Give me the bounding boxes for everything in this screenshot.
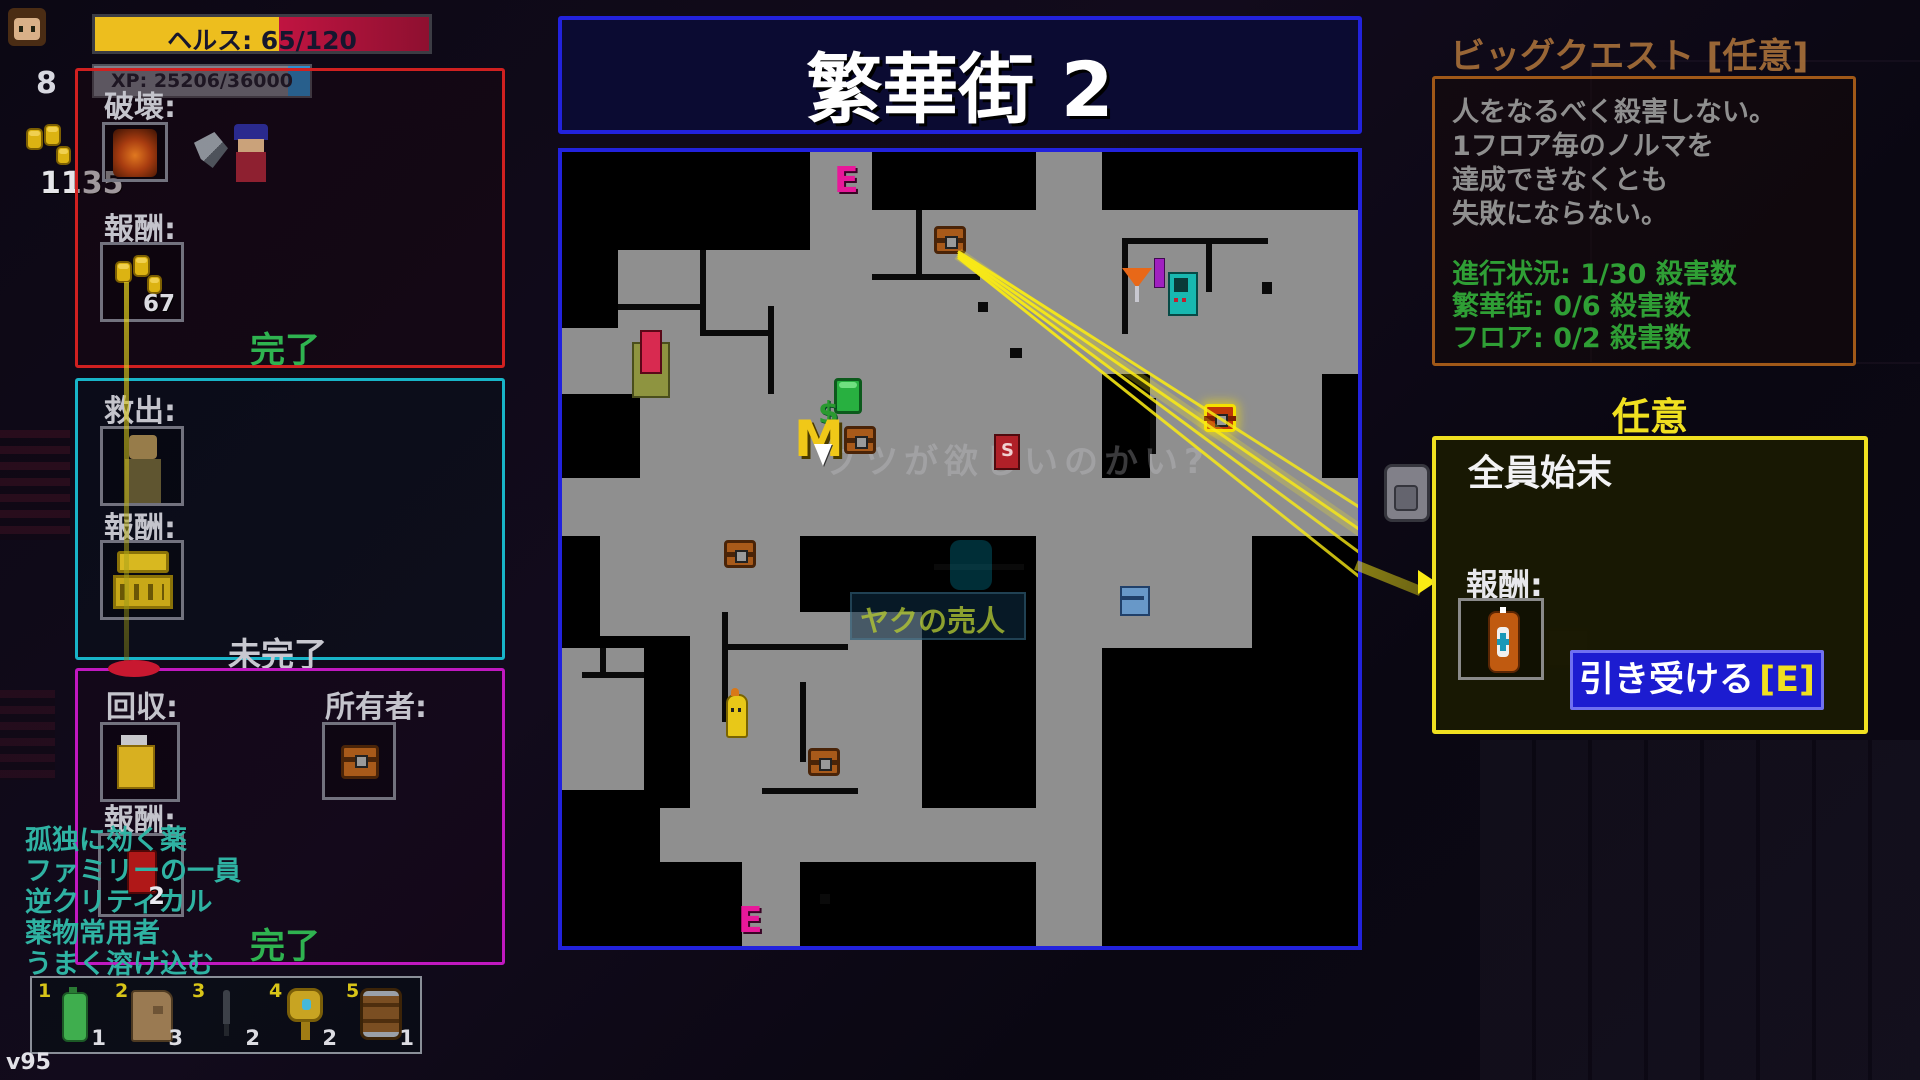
blue-box-lid (1122, 596, 1144, 600)
accept-quest-label: 引き受ける (1579, 660, 1754, 700)
map-panel: ブツが欲しいのかい? ヤクの売人 E E $ M S (558, 148, 1362, 950)
money-coin-icon (44, 124, 61, 146)
map-title-bar: 繁華街 2 (558, 16, 1362, 134)
slot-number: 4 (269, 980, 282, 1002)
slot-count: 2 (245, 1026, 260, 1050)
cocktail-icon (1122, 268, 1152, 288)
device-icon-base (113, 575, 173, 609)
bullet-npc-icon (726, 694, 748, 738)
hotbar-slot-2[interactable]: 2 3 (113, 980, 187, 1050)
quest-connector-line (124, 282, 129, 672)
avatar-eye (19, 26, 23, 32)
map-debris (1010, 348, 1022, 358)
rescue-target-box (100, 426, 184, 506)
map-chest-icon (808, 748, 840, 776)
bottle-cross-h (1497, 639, 1509, 645)
big-quest-desc-line: 失敗にならない。 (1452, 192, 1668, 231)
slot-count: 1 (399, 1026, 414, 1050)
optional-quest-title: 全員始末 (1468, 444, 1612, 496)
level-number: 8 (36, 66, 57, 101)
accept-quest-button[interactable]: 引き受ける [E] (1570, 650, 1824, 710)
slot-machine-top (640, 330, 662, 374)
vending-screen (1174, 278, 1188, 292)
npc-body (236, 152, 266, 182)
map-wall (618, 304, 704, 310)
health-bar-label: ヘルス: 65/120 (95, 21, 429, 57)
slot-number: 5 (346, 980, 359, 1002)
exit-marker-top: E (834, 160, 859, 201)
bag-fold (153, 1006, 163, 1014)
slot-number: 3 (192, 980, 205, 1002)
npc-face (238, 139, 264, 152)
retrieve-owner-label: 所有者: (325, 682, 427, 726)
map-chest-icon (844, 426, 876, 454)
sign-s-icon: S (994, 434, 1020, 470)
game-screen: ヘルス: 65/120 8 XP: 25206/36000 1135 破壊: 報… (0, 0, 1920, 1080)
map-wall (762, 788, 858, 794)
vending-dot (1174, 298, 1178, 302)
map-room (660, 808, 1040, 862)
paper-bag-icon (131, 990, 173, 1042)
mirror-gem (302, 999, 311, 1010)
version-label: v95 (6, 1050, 51, 1075)
map-street-horizontal (562, 478, 1358, 536)
slot-number: 2 (115, 980, 128, 1002)
map-debris (1262, 282, 1272, 294)
objective-arrow-icon (888, 260, 912, 288)
bottle-rim (839, 382, 857, 388)
player-avatar (8, 8, 46, 46)
sign-s-text: S (1001, 440, 1014, 461)
map-wall (582, 672, 644, 678)
map-room (562, 328, 618, 394)
background-bricks (0, 430, 70, 540)
map-cursor-icon (814, 444, 832, 466)
rescue-reward-box (100, 540, 184, 620)
health-bar: ヘルス: 65/120 (92, 14, 432, 54)
reward-coin-icon (115, 261, 132, 283)
bullet-tip (731, 688, 739, 696)
purple-bottle-icon (1154, 258, 1165, 288)
vending-dot (1182, 298, 1186, 302)
inventory-hotbar: 1 1 2 3 3 2 4 (30, 976, 422, 1054)
owner-chest-icon (341, 745, 379, 779)
cyan-vending-icon (1168, 272, 1198, 316)
slot-number: 1 (38, 980, 51, 1002)
rescue-npc-head (129, 435, 157, 459)
map-street-vertical (1036, 152, 1102, 946)
map-chest-icon (724, 540, 756, 568)
objective-arrow-icon (910, 290, 934, 318)
knife-handle (224, 1024, 229, 1036)
npc-hat (234, 124, 268, 140)
green-canteen-icon (62, 992, 88, 1042)
ghost-banner-text: ヤクの売人 (860, 598, 1005, 640)
beer-bottle-icon (1488, 611, 1520, 673)
player-arrow-icon (842, 646, 866, 674)
destroy-status: 完了 (250, 322, 320, 373)
objective-arrow-icon (890, 228, 914, 256)
hotbar-slot-4[interactable]: 4 2 (267, 980, 341, 1050)
destroy-target-icon (113, 129, 157, 177)
slot-count: 2 (322, 1026, 337, 1050)
rescue-title: 救出: (104, 386, 176, 430)
quest-connector-dot (108, 660, 160, 677)
background-bricks (0, 690, 55, 780)
map-debris (820, 894, 830, 904)
map-wall (728, 644, 848, 650)
optional-quest-header: 任意 (1432, 386, 1868, 441)
objective-arrow-icon (918, 256, 942, 284)
map-wall (600, 648, 606, 672)
dropped-backpack-icon (1384, 464, 1430, 522)
exit-marker-bottom: E (738, 900, 763, 941)
map-wall (1206, 238, 1212, 292)
slot-machine-icon (632, 342, 670, 398)
canteen-cap (69, 987, 77, 993)
blue-box-icon (1120, 586, 1150, 616)
ghost-banner: ヤクの売人 (850, 592, 1026, 640)
quest-beam (1354, 560, 1423, 595)
slot-count: 1 (91, 1026, 106, 1050)
bullet-eye (731, 708, 734, 712)
map-title: 繁華街 2 (562, 28, 1358, 138)
cocktail-stem (1135, 286, 1139, 302)
money-coin-icon (26, 128, 43, 150)
hotbar-slot-5[interactable]: 5 1 (344, 980, 418, 1050)
mirror-handle (301, 1022, 310, 1040)
bullet-eye (738, 708, 741, 712)
accept-quest-key: [E] (1759, 660, 1815, 700)
hotbar-slot-1[interactable]: 1 1 (36, 980, 110, 1050)
avatar-eye (31, 26, 35, 32)
retrieve-title: 回収: (106, 682, 178, 726)
knife-icon (223, 990, 230, 1024)
map-wall (700, 330, 774, 336)
background-floor-grid (1480, 740, 1920, 1080)
destroy-title: 破壊: (104, 82, 176, 126)
retrieve-target-box (100, 722, 180, 802)
reward-coin-icon (133, 255, 150, 277)
bottle-shine (1500, 607, 1506, 613)
avatar-face (14, 18, 40, 40)
folder-icon (117, 745, 155, 789)
map-wall (1122, 238, 1268, 244)
map-wall (700, 250, 706, 332)
ghost-npc-glow (950, 540, 992, 590)
objective-arrow-icon (940, 294, 964, 322)
owner-chest-box (322, 722, 396, 800)
map-wall (768, 306, 774, 394)
gold-mirror-icon (287, 988, 323, 1022)
npc-icon (232, 124, 270, 182)
money-coin-icon (56, 146, 71, 165)
big-quest-progress-line: フロア: 0/2 殺害数 (1452, 316, 1691, 355)
optional-quest-reward-box (1458, 598, 1544, 680)
destroy-reward-box: 67 (100, 242, 184, 322)
rescue-npc-body (125, 459, 161, 503)
map-wall (800, 682, 806, 762)
destroy-reward-amount: 67 (143, 291, 175, 317)
retrieve-status: 完了 (250, 918, 320, 969)
slot-count: 3 (168, 1026, 183, 1050)
big-quest-title: ビッグクエスト [任意] (1450, 28, 1808, 79)
hotbar-slot-3[interactable]: 3 2 (190, 980, 264, 1050)
map-debris (978, 302, 988, 312)
barrel-icon (360, 988, 402, 1040)
backpack-pocket (1394, 485, 1418, 511)
destroy-target-box (102, 122, 168, 182)
